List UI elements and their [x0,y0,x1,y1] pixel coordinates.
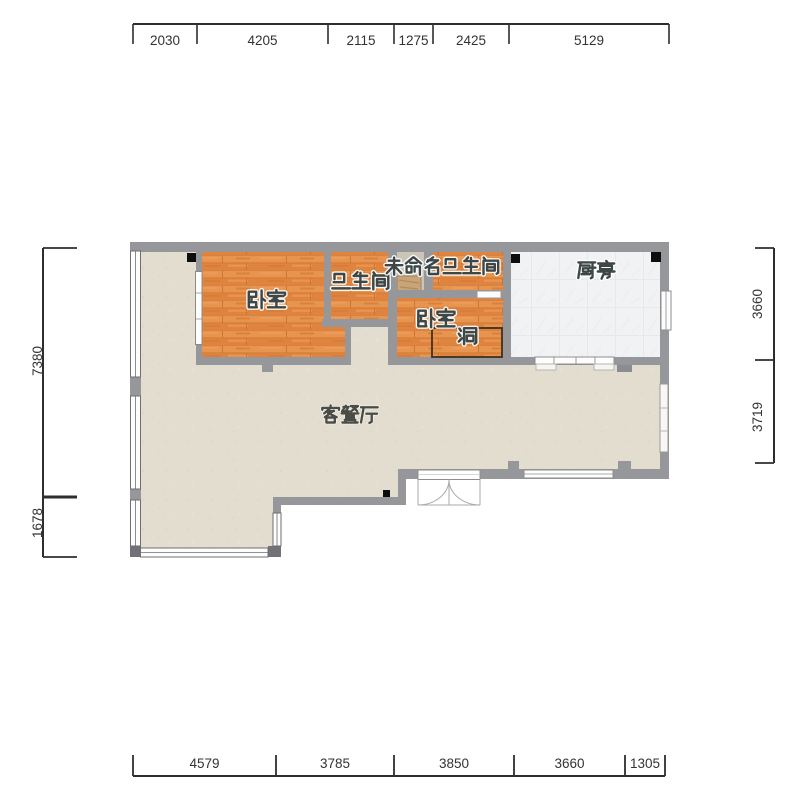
svg-text:3660: 3660 [554,756,584,771]
svg-text:4579: 4579 [189,756,219,771]
svg-text:3785: 3785 [320,756,350,771]
svg-text:5129: 5129 [574,33,604,48]
svg-text:3850: 3850 [439,756,469,771]
svg-text:2115: 2115 [346,33,375,48]
svg-text:1275: 1275 [398,33,428,48]
svg-text:2425: 2425 [456,33,486,48]
svg-text:3660: 3660 [750,289,765,319]
svg-text:3719: 3719 [750,402,765,432]
svg-text:7380: 7380 [30,346,45,376]
svg-text:4205: 4205 [247,33,277,48]
svg-text:1678: 1678 [30,508,45,538]
svg-text:2030: 2030 [150,33,180,48]
svg-text:1305: 1305 [630,756,660,771]
